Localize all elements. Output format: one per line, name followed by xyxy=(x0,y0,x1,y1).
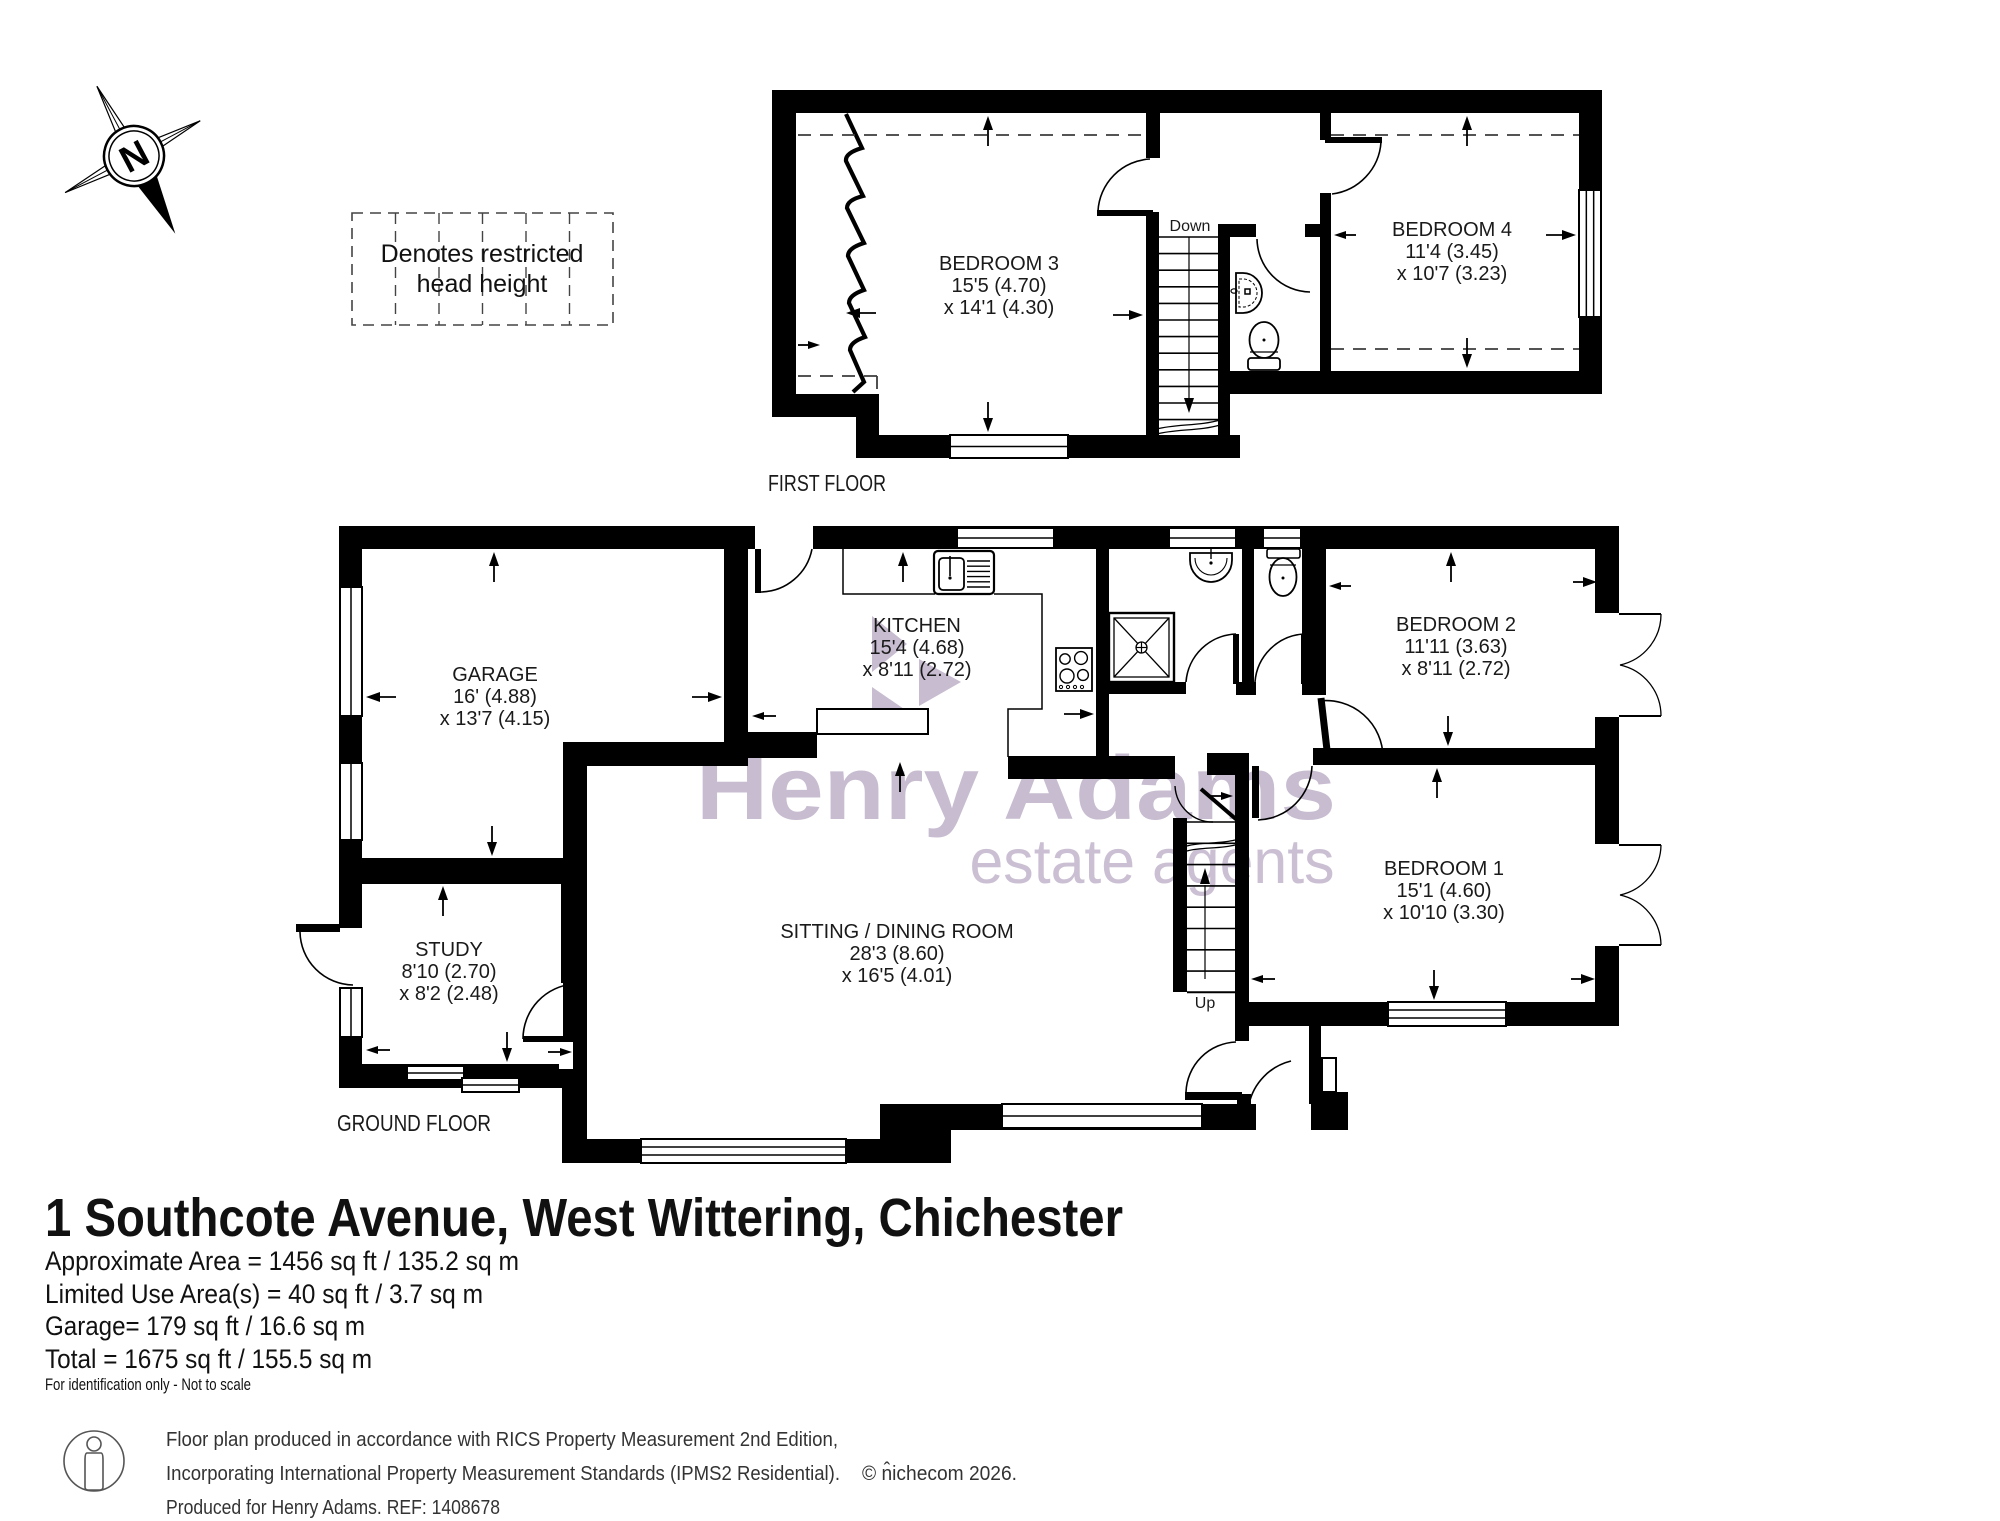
svg-text:x 8'11 (2.72): x 8'11 (2.72) xyxy=(1401,658,1510,680)
svg-text:11'4 (3.45): 11'4 (3.45) xyxy=(1405,241,1499,263)
svg-text:© n̂ichecom 2026.: © n̂ichecom 2026. xyxy=(862,1462,1017,1485)
svg-text:x 10'10 (3.30): x 10'10 (3.30) xyxy=(1383,902,1505,924)
svg-text:x 10'7 (3.23): x 10'7 (3.23) xyxy=(1397,263,1508,285)
svg-text:28'3 (8.60): 28'3 (8.60) xyxy=(850,943,945,965)
svg-text:FIRST FLOOR: FIRST FLOOR xyxy=(768,470,886,496)
svg-text:x 13'7 (4.15): x 13'7 (4.15) xyxy=(440,708,551,730)
svg-text:x 8'11 (2.72): x 8'11 (2.72) xyxy=(862,659,971,681)
svg-text:11'11 (3.63): 11'11 (3.63) xyxy=(1404,636,1507,658)
svg-text:BEDROOM 4: BEDROOM 4 xyxy=(1392,219,1512,241)
svg-text:GROUND FLOOR: GROUND FLOOR xyxy=(337,1110,491,1136)
svg-text:STUDY: STUDY xyxy=(415,939,483,961)
svg-text:Incorporating International Pr: Incorporating International Property Mea… xyxy=(166,1463,840,1485)
svg-text:Approximate Area = 1456 sq ft: Approximate Area = 1456 sq ft / 135.2 sq… xyxy=(45,1246,519,1276)
svg-text:Limited Use Area(s) = 40 sq ft: Limited Use Area(s) = 40 sq ft / 3.7 sq … xyxy=(45,1279,483,1309)
svg-text:1 Southcote Avenue, West Witte: 1 Southcote Avenue, West Wittering, Chic… xyxy=(45,1188,1123,1248)
svg-text:Produced for Henry Adams. RE: Produced for Henry Adams. REF: 1408678 xyxy=(166,1497,500,1519)
svg-text:head height: head height xyxy=(417,270,548,298)
svg-text:Up: Up xyxy=(1195,995,1216,1012)
svg-text:Garage= 179 sq ft / 16.6 sq m: Garage= 179 sq ft / 16.6 sq m xyxy=(45,1311,365,1341)
svg-text:BEDROOM 3: BEDROOM 3 xyxy=(939,253,1059,275)
svg-text:SITTING / DINING ROOM: SITTING / DINING ROOM xyxy=(780,921,1013,943)
svg-text:GARAGE: GARAGE xyxy=(452,664,538,686)
svg-text:x 8'2 (2.48): x 8'2 (2.48) xyxy=(399,983,498,1005)
svg-text:Total = 1675 sq ft / 155.5 sq: Total = 1675 sq ft / 155.5 sq m xyxy=(45,1344,372,1374)
svg-text:estate agents: estate agents xyxy=(970,827,1335,897)
svg-text:Denotes restricted: Denotes restricted xyxy=(381,240,584,268)
svg-text:x 14'1 (4.30): x 14'1 (4.30) xyxy=(944,297,1055,319)
svg-text:15'5 (4.70): 15'5 (4.70) xyxy=(952,275,1047,297)
svg-text:BEDROOM 2: BEDROOM 2 xyxy=(1396,614,1516,636)
svg-text:x 16'5 (4.01): x 16'5 (4.01) xyxy=(842,965,953,987)
svg-text:Floor plan produced in accorda: Floor plan produced in accordance with R… xyxy=(166,1429,838,1451)
svg-text:8'10 (2.70): 8'10 (2.70) xyxy=(402,961,497,983)
svg-text:For identification only - Not: For identification only - Not to scale xyxy=(45,1375,251,1394)
svg-text:KITCHEN: KITCHEN xyxy=(873,615,961,637)
svg-text:15'1 (4.60): 15'1 (4.60) xyxy=(1397,880,1492,902)
svg-text:15'4 (4.68): 15'4 (4.68) xyxy=(870,637,965,659)
svg-text:BEDROOM 1: BEDROOM 1 xyxy=(1384,858,1504,880)
svg-text:16' (4.88): 16' (4.88) xyxy=(453,686,537,708)
svg-text:Down: Down xyxy=(1170,218,1211,235)
